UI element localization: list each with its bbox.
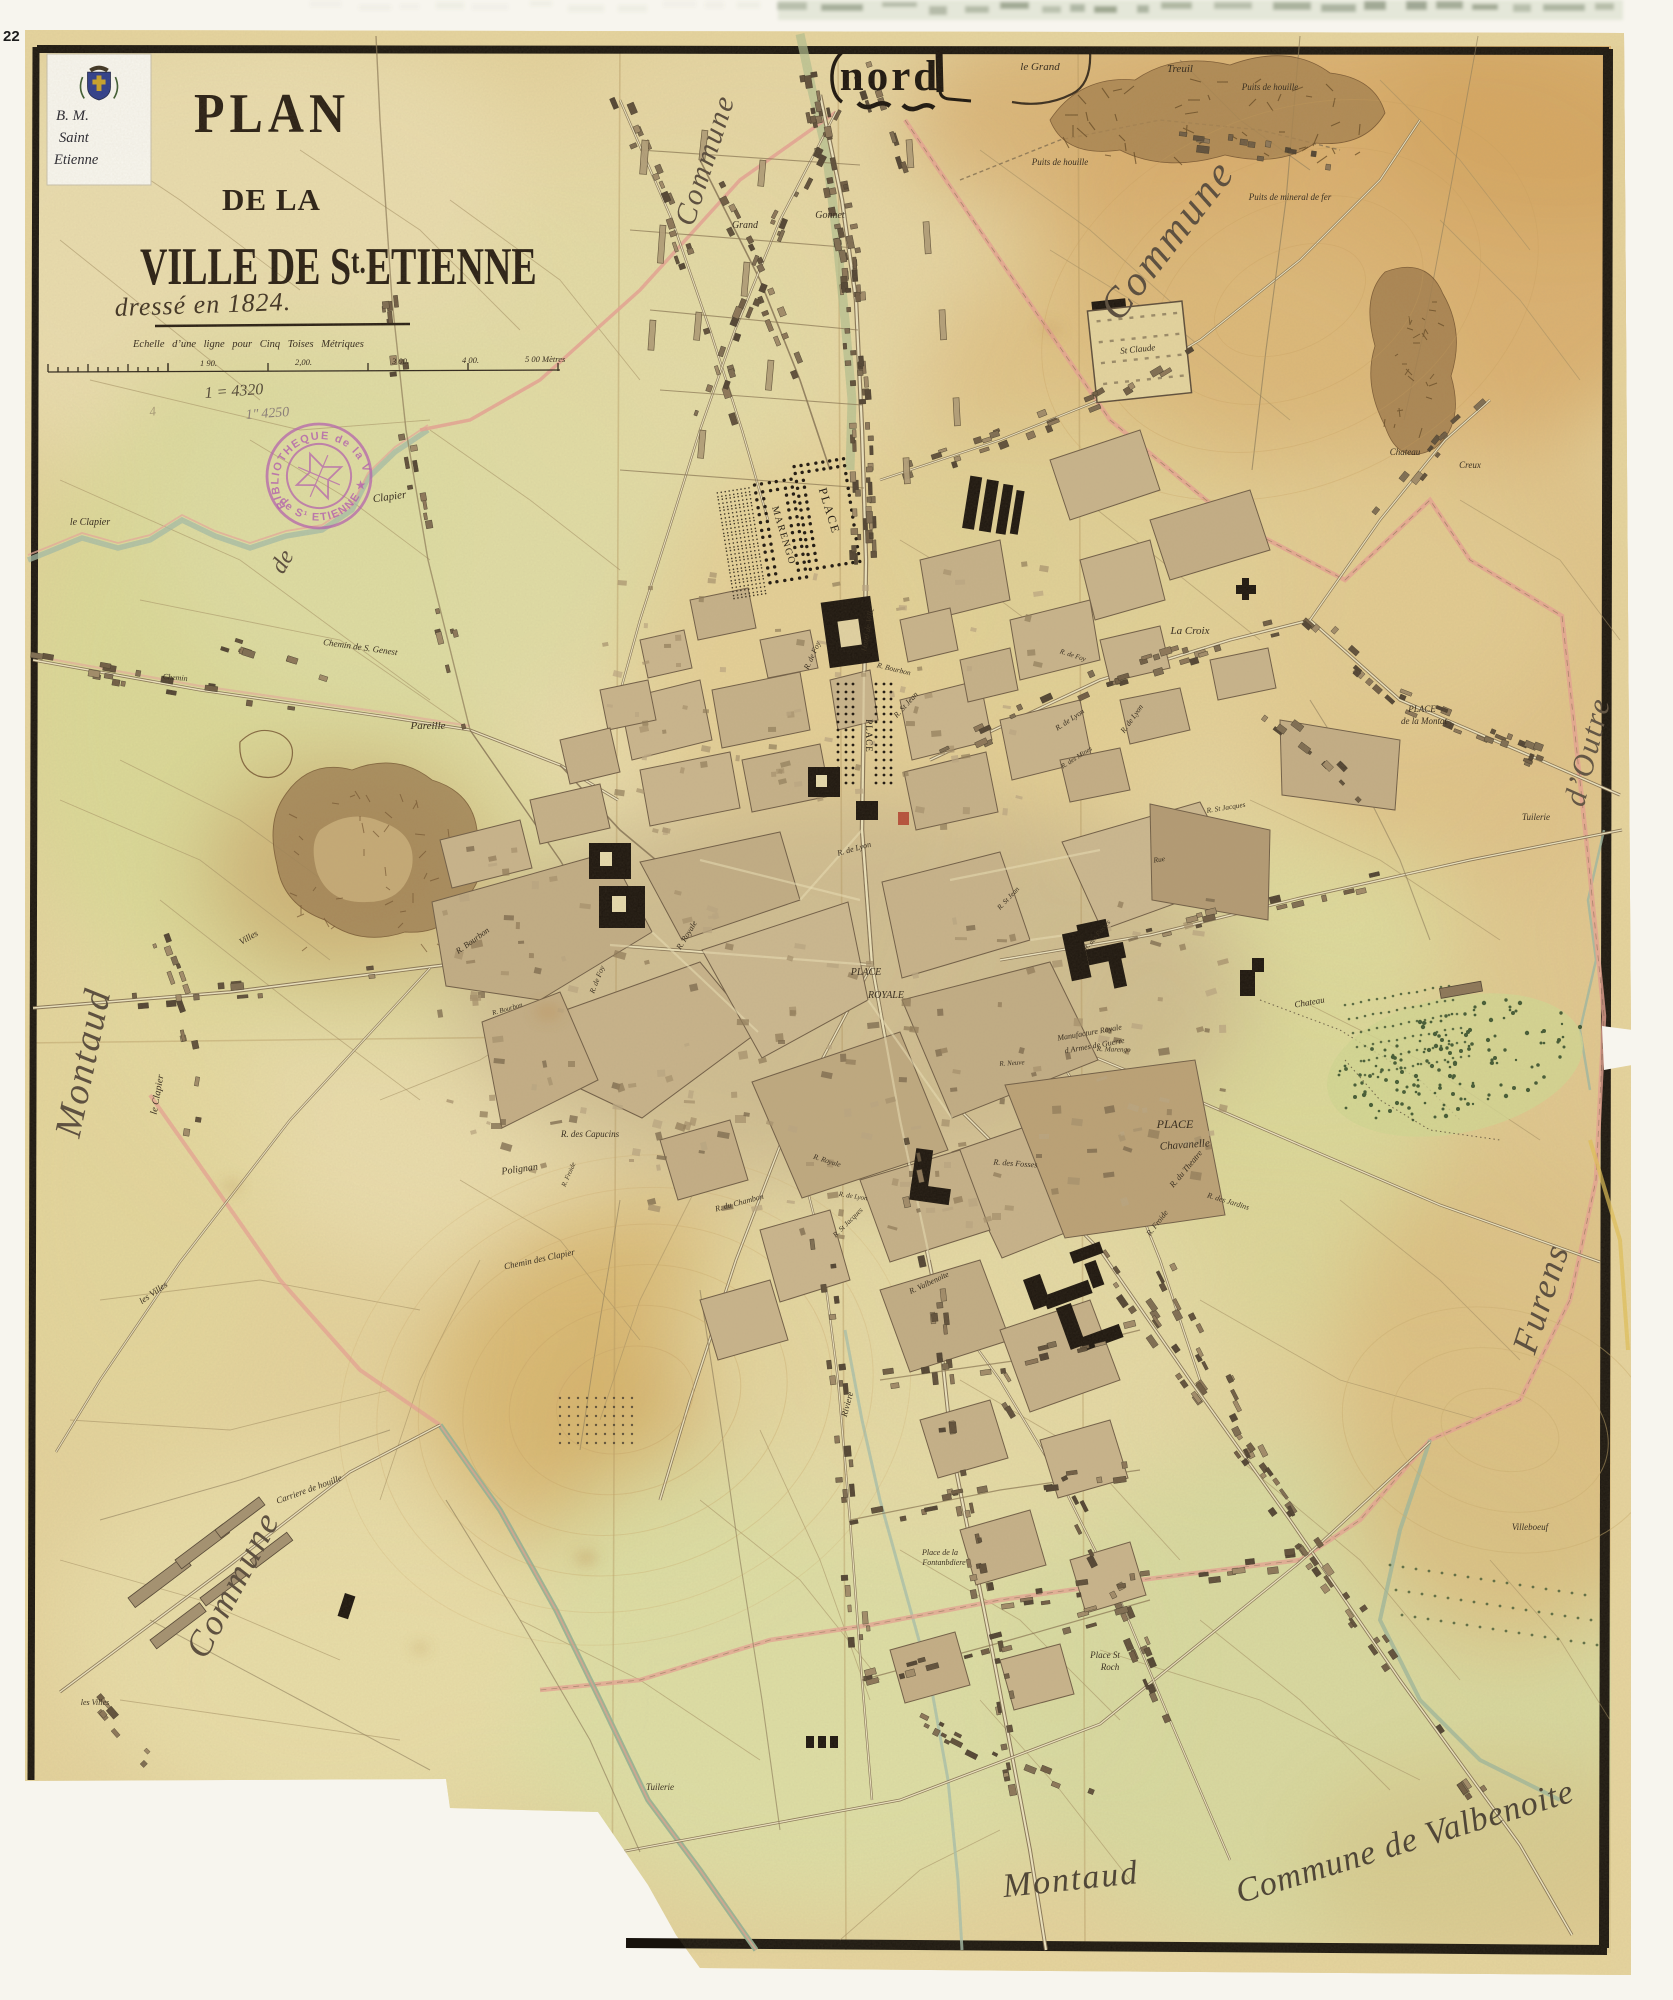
svg-text:22: 22	[3, 28, 20, 45]
